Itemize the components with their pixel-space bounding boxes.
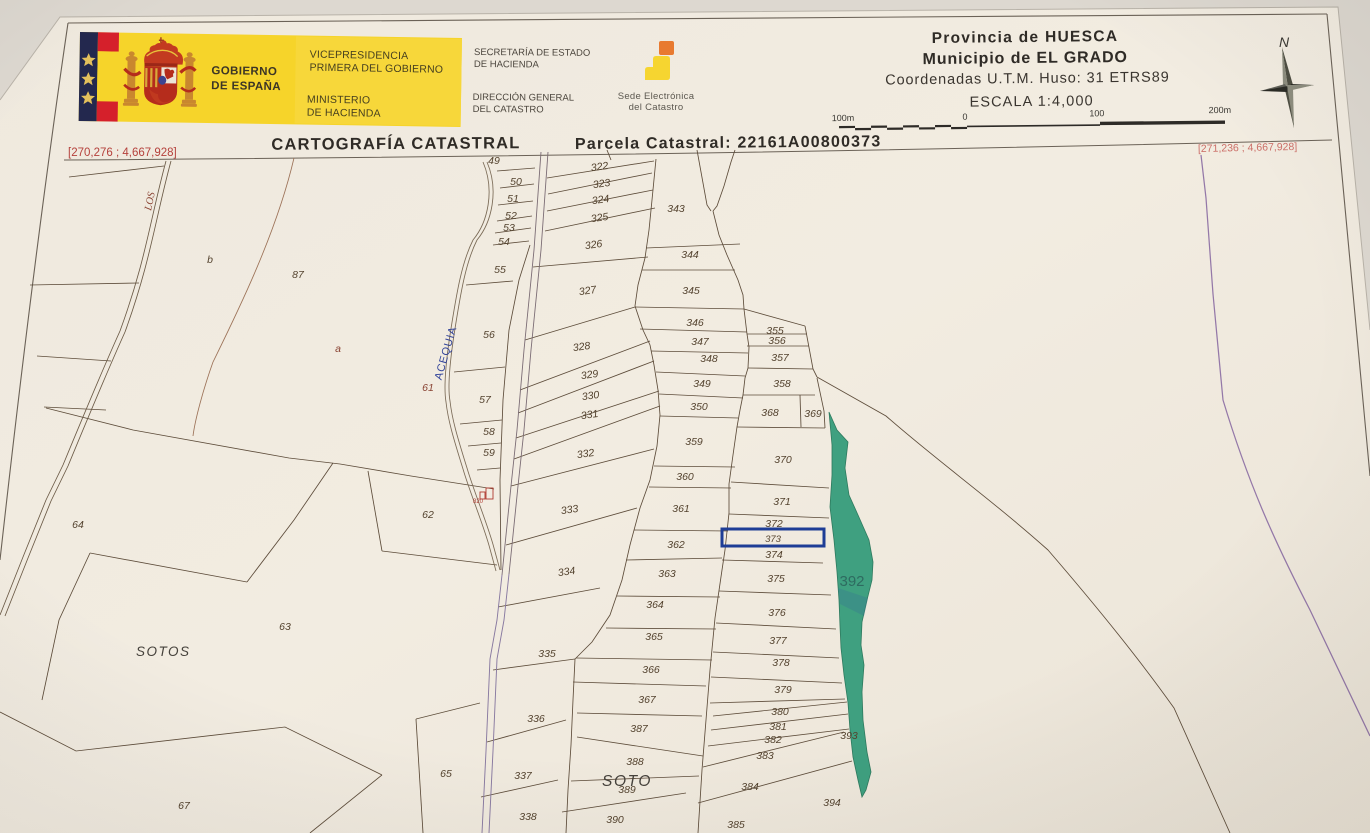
svg-text:362: 362 (667, 539, 685, 551)
svg-text:325: 325 (590, 211, 609, 225)
svg-text:53: 53 (503, 222, 515, 234)
svg-text:389: 389 (618, 784, 636, 796)
svg-text:DE HACIENDA: DE HACIENDA (474, 59, 540, 70)
svg-text:369: 369 (804, 408, 822, 420)
svg-text:368: 368 (761, 407, 779, 419)
svg-text:336: 336 (527, 713, 545, 725)
svg-text:326: 326 (584, 238, 603, 252)
svg-text:PRIMERA DEL GOBIERNO: PRIMERA DEL GOBIERNO (309, 62, 443, 76)
svg-text:390: 390 (606, 814, 624, 826)
svg-text:346: 346 (686, 317, 704, 329)
svg-text:344: 344 (681, 249, 699, 261)
svg-text:[271,236 ; 4,667,928]: [271,236 ; 4,667,928] (1198, 141, 1298, 155)
svg-text:100m: 100m (832, 113, 855, 123)
svg-text:62: 62 (422, 509, 434, 521)
svg-text:Provincia de HUESCA: Provincia de HUESCA (932, 28, 1119, 47)
svg-text:330: 330 (581, 389, 600, 403)
svg-text:357: 357 (771, 352, 790, 364)
svg-text:345: 345 (682, 285, 700, 297)
svg-text:DE HACIENDA: DE HACIENDA (307, 107, 381, 120)
svg-text:67: 67 (178, 800, 191, 812)
svg-text:334: 334 (557, 565, 576, 579)
svg-text:328: 328 (572, 340, 591, 354)
svg-text:393: 393 (840, 730, 858, 742)
svg-text:379: 379 (774, 684, 792, 696)
svg-text:59: 59 (483, 447, 495, 459)
svg-text:360: 360 (676, 471, 694, 483)
svg-text:338: 338 (519, 811, 537, 823)
svg-text:358: 358 (773, 378, 791, 390)
svg-text:87: 87 (292, 269, 305, 281)
svg-text:65: 65 (440, 768, 452, 780)
svg-text:385: 385 (727, 819, 745, 831)
svg-text:100: 100 (1089, 108, 1104, 118)
svg-text:VICEPRESIDENCIA: VICEPRESIDENCIA (310, 49, 409, 63)
svg-text:DEL CATASTRO: DEL CATASTRO (473, 104, 544, 115)
svg-text:361: 361 (672, 503, 690, 515)
svg-text:364: 364 (646, 599, 664, 611)
svg-text:322: 322 (590, 160, 609, 174)
svg-text:61: 61 (422, 382, 434, 394)
svg-text:200m: 200m (1209, 105, 1232, 115)
svg-text:365: 365 (645, 631, 663, 643)
svg-text:Municipio de EL GRADO: Municipio de EL GRADO (922, 49, 1127, 68)
svg-text:58: 58 (483, 426, 495, 438)
svg-text:a: a (335, 343, 341, 355)
svg-text:380: 380 (771, 706, 789, 718)
svg-text:367: 367 (638, 694, 657, 706)
svg-text:N: N (1279, 34, 1290, 50)
svg-text:372: 372 (765, 518, 783, 530)
svg-text:Coordenadas U.T.M. Huso: 31 ET: Coordenadas U.T.M. Huso: 31 ETRS89 (885, 69, 1170, 88)
svg-text:337: 337 (514, 770, 533, 782)
svg-text:375: 375 (767, 573, 785, 585)
svg-text:SECRETARÍA DE ESTADO: SECRETARÍA DE ESTADO (474, 47, 590, 59)
svg-text:b: b (207, 254, 213, 266)
svg-text:348: 348 (700, 353, 718, 365)
svg-text:371: 371 (773, 496, 791, 508)
svg-text:55: 55 (494, 264, 506, 276)
svg-text:363: 363 (658, 568, 676, 580)
svg-text:377: 377 (769, 635, 788, 647)
svg-text:329: 329 (580, 368, 599, 382)
svg-text:359: 359 (685, 436, 703, 448)
svg-text:384: 384 (741, 781, 759, 793)
svg-text:333: 333 (560, 503, 579, 517)
svg-text:49: 49 (488, 155, 500, 167)
svg-text:52: 52 (505, 210, 517, 222)
svg-text:MINISTERIO: MINISTERIO (307, 94, 370, 107)
svg-text:381: 381 (769, 721, 787, 733)
svg-text:324: 324 (591, 193, 610, 207)
svg-text:374: 374 (765, 549, 783, 561)
svg-text:63: 63 (279, 621, 291, 633)
svg-text:394: 394 (823, 797, 841, 809)
svg-text:388: 388 (626, 756, 644, 768)
svg-text:54: 54 (498, 236, 510, 248)
svg-text:376: 376 (768, 607, 786, 619)
svg-text:370: 370 (774, 454, 792, 466)
svg-text:820: 820 (473, 499, 484, 505)
svg-text:366: 366 (642, 664, 660, 676)
svg-text:0: 0 (962, 112, 967, 122)
svg-text:GOBIERNO: GOBIERNO (211, 65, 277, 78)
svg-text:331: 331 (580, 408, 599, 422)
svg-text:332: 332 (576, 447, 595, 461)
svg-text:ESCALA 1:4,000: ESCALA 1:4,000 (969, 93, 1093, 110)
svg-text:392: 392 (839, 573, 864, 590)
svg-text:335: 335 (538, 648, 556, 660)
svg-text:387: 387 (630, 723, 649, 735)
svg-text:347: 347 (691, 336, 710, 348)
svg-text:349: 349 (693, 378, 711, 390)
svg-text:323: 323 (592, 177, 611, 191)
svg-text:373: 373 (765, 534, 782, 545)
svg-text:356: 356 (768, 335, 786, 347)
svg-text:383: 383 (756, 750, 774, 762)
svg-text:DE ESPAÑA: DE ESPAÑA (211, 79, 281, 93)
svg-text:[270,276 ; 4,667,928]: [270,276 ; 4,667,928] (68, 147, 177, 159)
svg-text:382: 382 (764, 734, 782, 746)
svg-text:SOTOS: SOTOS (136, 644, 191, 659)
svg-text:51: 51 (507, 193, 519, 205)
svg-text:64: 64 (72, 519, 84, 531)
svg-text:del Catastro: del Catastro (629, 102, 684, 113)
svg-text:CARTOGRAFÍA CATASTRAL: CARTOGRAFÍA CATASTRAL (271, 133, 520, 154)
svg-text:350: 350 (690, 401, 708, 413)
svg-text:57: 57 (479, 394, 492, 406)
svg-text:Parcela Catastral: 22161A00800: Parcela Catastral: 22161A00800373 (575, 133, 882, 153)
svg-text:DIRECCIÓN GENERAL: DIRECCIÓN GENERAL (473, 92, 574, 104)
svg-text:343: 343 (667, 203, 685, 215)
svg-text:56: 56 (483, 329, 495, 341)
svg-text:Sede Electrónica: Sede Electrónica (618, 91, 695, 102)
svg-text:378: 378 (772, 657, 790, 669)
svg-text:50: 50 (510, 176, 522, 188)
